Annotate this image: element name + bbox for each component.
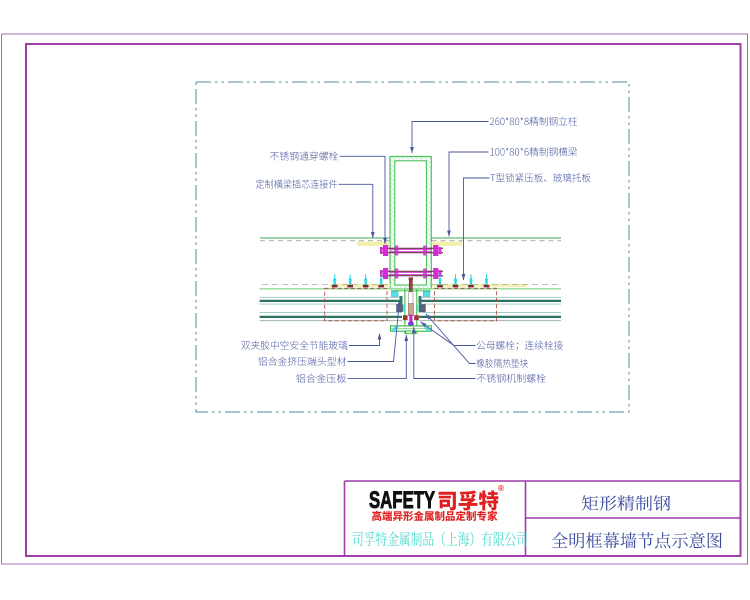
svg-text:SAFETY: SAFETY [369, 487, 435, 514]
svg-text:®: ® [498, 484, 504, 493]
